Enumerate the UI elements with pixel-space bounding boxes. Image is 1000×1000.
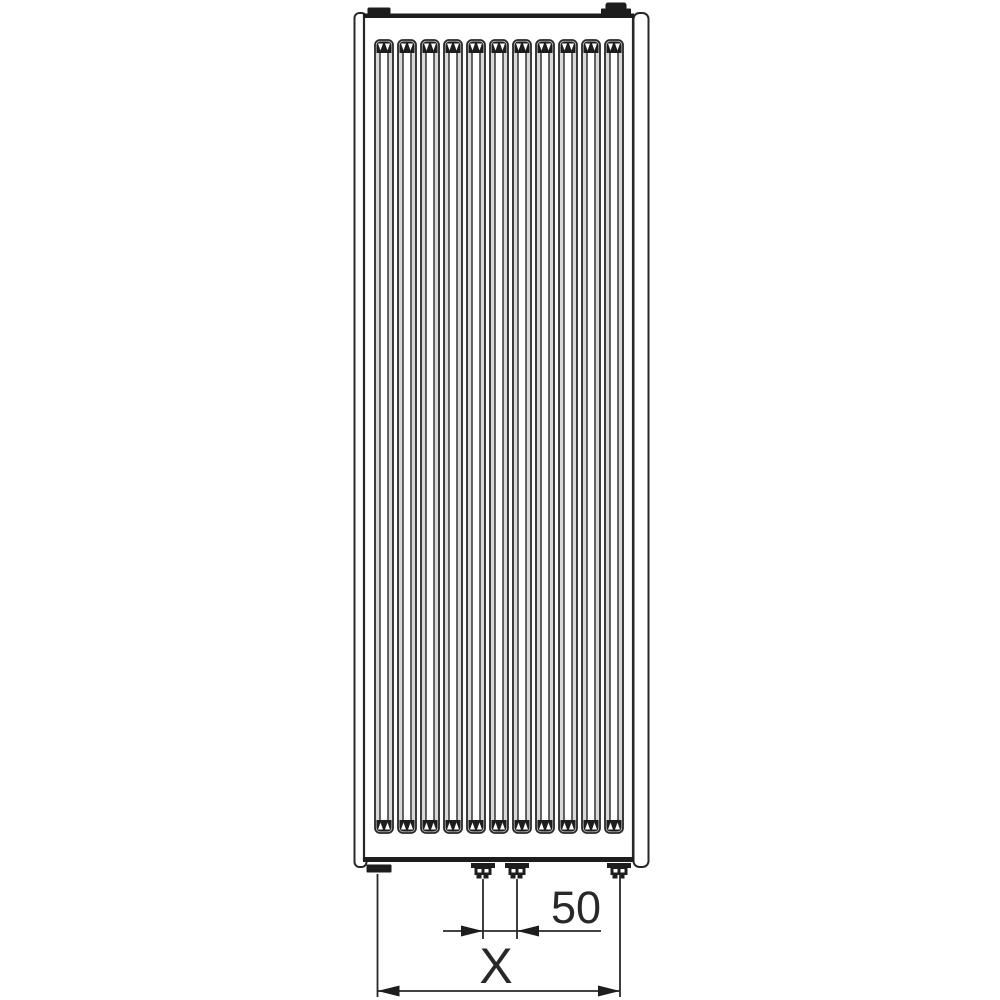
groove	[398, 40, 416, 833]
dimension-50: 50	[443, 882, 601, 937]
connection-nozzle-mid-left	[471, 863, 495, 879]
nozzle-hole	[519, 869, 523, 873]
nozzle-foot	[518, 875, 523, 879]
nozzle-foot	[613, 875, 618, 879]
groove	[536, 40, 554, 833]
radiator-diagram: 50 X	[0, 0, 1000, 1000]
nozzle-hole	[478, 869, 482, 873]
nozzle-hole	[621, 869, 625, 873]
connection-nozzle-mid-right	[505, 863, 529, 879]
groove	[467, 40, 485, 833]
groove	[582, 40, 600, 833]
nozzle-body	[509, 867, 526, 875]
groove	[559, 40, 577, 833]
arrowhead-left-icon	[517, 926, 539, 937]
nozzle-body	[611, 867, 628, 875]
front-panel-bottom-edge	[363, 857, 634, 862]
blind-plug-top-left	[368, 8, 391, 16]
nozzle-body	[475, 867, 492, 875]
nozzle-foot	[484, 875, 489, 879]
dimension-x: X	[378, 938, 621, 997]
side-panel-right	[634, 13, 649, 867]
air-vent-top	[606, 3, 627, 11]
nozzle-foot	[477, 875, 482, 879]
front-panel-top-edge	[363, 14, 634, 19]
radiator-grooves	[375, 40, 623, 833]
arrowhead-right-icon	[598, 986, 620, 997]
nozzle-hole	[614, 869, 618, 873]
nozzle-hole	[512, 869, 516, 873]
arrowhead-right-icon	[461, 926, 483, 937]
groove	[444, 40, 462, 833]
nozzle-hole	[485, 869, 489, 873]
connection-nozzle-left	[367, 865, 392, 873]
technical-drawing-canvas: 50 X	[0, 0, 1000, 1000]
connection-nozzle-right	[607, 863, 631, 879]
groove	[490, 40, 508, 833]
nozzle-foot	[511, 875, 516, 879]
arrowhead-left-icon	[378, 986, 400, 997]
groove	[421, 40, 439, 833]
groove	[605, 40, 623, 833]
dimension-label-x: X	[479, 938, 512, 994]
air-vent-cap-top-right	[601, 3, 631, 16]
dimension-label-50: 50	[551, 882, 601, 933]
groove	[375, 40, 393, 833]
groove	[513, 40, 531, 833]
